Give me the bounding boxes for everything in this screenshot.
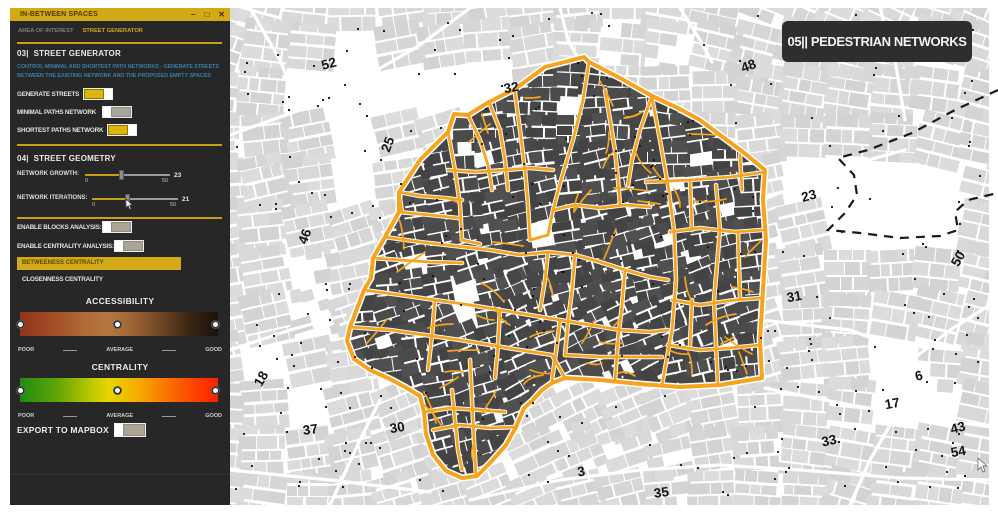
- svg-text:17: 17: [884, 395, 901, 412]
- svg-text:54: 54: [950, 443, 968, 460]
- svg-text:30: 30: [389, 419, 406, 436]
- svg-text:37: 37: [302, 421, 319, 438]
- svg-text:35: 35: [653, 484, 670, 501]
- svg-text:31: 31: [786, 288, 804, 305]
- svg-text:32: 32: [503, 79, 520, 96]
